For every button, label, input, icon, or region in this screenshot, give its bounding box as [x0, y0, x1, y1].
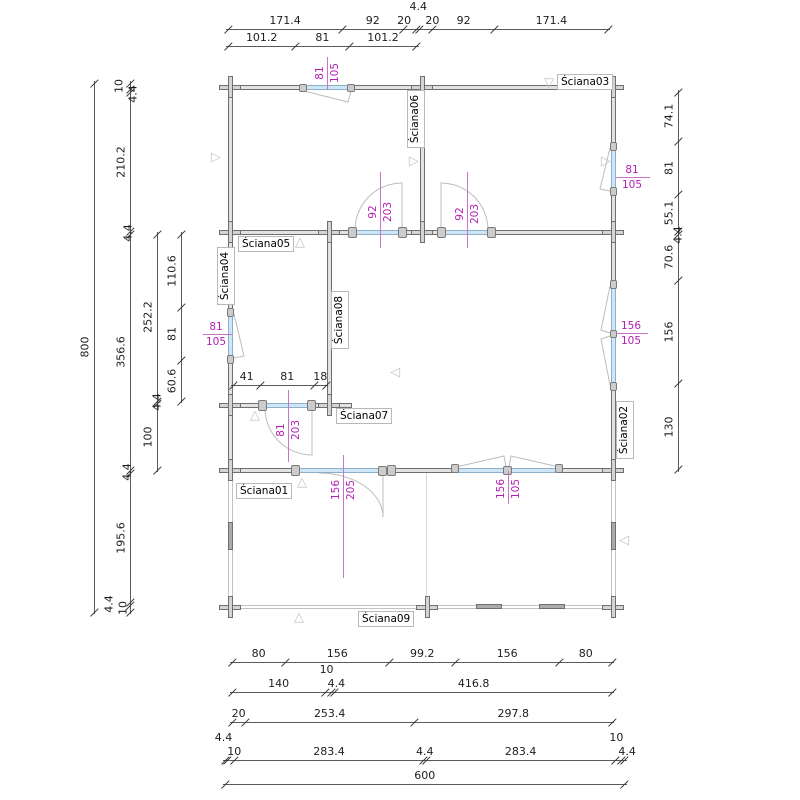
dimension-value: 283.4 — [313, 745, 345, 758]
junction-cross-bar — [611, 459, 616, 481]
dimension-line — [157, 232, 158, 472]
dimension-value: 4.4 — [618, 745, 636, 758]
jamb-block — [610, 280, 617, 289]
wall-label-sciana07: Ściana07 — [336, 408, 392, 424]
jamb-block — [451, 464, 459, 473]
dimension-value: 80 — [252, 647, 266, 660]
dimension-value: 130 — [663, 416, 676, 437]
dimension-value: 74.1 — [663, 104, 676, 129]
wall-label-sciana03: Ściana03 — [557, 74, 613, 90]
porch-wall-dash — [476, 604, 502, 609]
junction-cross-bar — [611, 221, 616, 243]
jamb-block — [610, 382, 617, 391]
porch-post-left — [228, 522, 233, 550]
dimension-value: 283.4 — [505, 745, 537, 758]
dimension-value: 195.6 — [115, 522, 128, 554]
casement-window-top — [304, 91, 351, 102]
dimension-value: 210.2 — [115, 146, 128, 178]
dimension-value: 252.2 — [142, 302, 155, 334]
dimension-value: 100 — [142, 426, 155, 447]
dimension-value: 80 — [579, 647, 593, 660]
dimension-value: 101.2 — [367, 31, 399, 44]
dimension-line — [130, 81, 131, 614]
triangle-marker: △ — [250, 409, 260, 422]
wall-mid-segment — [492, 230, 616, 235]
opening-centerline — [380, 172, 381, 248]
dimension-value: 4.4 — [409, 0, 427, 13]
dimension-value: 20 — [425, 14, 439, 27]
opening-height-value: 203 — [382, 202, 394, 222]
window-right-81-glass — [611, 146, 616, 192]
dimension-value: 20 — [397, 14, 411, 27]
dimension-value: 140 — [268, 677, 289, 690]
triangle-marker: △ — [297, 476, 307, 489]
triangle-marker: △ — [544, 77, 554, 90]
dimension-value: 55.1 — [663, 200, 676, 225]
dimension-value: 18 — [313, 370, 327, 383]
opening-centerline — [508, 471, 509, 504]
wall-label-sciana04: Ściana04 — [217, 247, 235, 305]
dimension-value: 800 — [79, 337, 92, 358]
dimension-value: 171.4 — [269, 14, 301, 27]
opening-width-value: 81 — [625, 164, 638, 176]
junction-cross-bar — [611, 596, 616, 618]
casement-window-s01-a — [456, 456, 506, 467]
casement-window-right-156-a — [601, 286, 610, 333]
jamb-block — [378, 466, 387, 476]
dimension-value: 10 — [320, 663, 334, 676]
junction-cross-bar — [228, 221, 233, 243]
junction-cross-bar — [425, 596, 430, 618]
junction-cross-bar — [420, 221, 425, 243]
dimension-value: 110.6 — [166, 255, 179, 287]
dimension-value: 81 — [280, 370, 294, 383]
opening-height-value: 105 — [510, 479, 522, 499]
dimension-line — [94, 81, 95, 614]
dimension-value: 70.6 — [663, 245, 676, 270]
opening-centerline — [343, 455, 344, 578]
jamb-block — [398, 227, 407, 238]
dimension-value: 4.4 — [215, 731, 233, 744]
door-81-sill — [262, 403, 312, 408]
jamb-block — [347, 84, 355, 92]
dimension-value: 101.2 — [246, 31, 278, 44]
casement-window-s01-b — [509, 456, 559, 467]
wall-left-segment — [228, 360, 233, 473]
triangle-marker: △ — [389, 368, 402, 378]
opening-height-value: 105 — [622, 179, 642, 191]
opening-width-value: 156 — [330, 480, 342, 500]
dimension-value: 10 — [227, 745, 241, 758]
jamb-block — [437, 227, 446, 238]
dimension-value: 356.6 — [115, 336, 128, 368]
dimension-value: 81 — [663, 161, 676, 175]
dimension-value: 60.6 — [166, 368, 179, 393]
dimension-value: 4.4 — [103, 595, 116, 613]
window-left-glass — [228, 312, 233, 358]
triangle-marker: △ — [210, 153, 223, 163]
dimension-value: 92 — [457, 14, 471, 27]
opening-width-value: 92 — [367, 205, 379, 218]
wall-label-sciana01: Ściana01 — [236, 483, 292, 499]
floor-plan-canvas: 171.492204.42092171.4101.281101.24181188… — [0, 0, 800, 800]
opening-width-value: 156 — [621, 320, 641, 332]
dimension-value: 156 — [663, 322, 676, 343]
wall-label-sciana02: Ściana02 — [616, 401, 634, 459]
jamb-block — [227, 355, 234, 364]
dimension-value: 99.2 — [410, 647, 435, 660]
wall-label-sciana08: Ściana08 — [331, 291, 349, 349]
triangle-marker: △ — [295, 236, 305, 249]
jamb-block — [307, 400, 316, 411]
opening-centerline — [616, 333, 648, 334]
wall-label-sciana05: Ściana05 — [238, 236, 294, 252]
junction-cross-bar — [228, 394, 233, 416]
casement-window-left — [234, 314, 244, 358]
door-swing-and-casement-layer — [0, 0, 800, 800]
dimension-value: 92 — [366, 14, 380, 27]
dimension-line — [226, 46, 419, 47]
dimension-value: 10 — [609, 731, 623, 744]
jamb-block — [387, 465, 396, 476]
opening-height-value: 205 — [345, 480, 357, 500]
opening-height-value: 203 — [290, 420, 302, 440]
jamb-block — [348, 227, 357, 238]
jamb-block — [610, 142, 617, 151]
casement-window-right-156-b — [601, 336, 610, 385]
dimension-value: 10 — [113, 79, 126, 93]
wall-label-sciana06: Ściana06 — [407, 90, 425, 148]
opening-height-value: 203 — [469, 204, 481, 224]
junction-cross-bar — [228, 76, 233, 98]
triangle-marker: △ — [618, 536, 631, 546]
dimension-line — [230, 692, 614, 693]
jamb-block — [487, 227, 496, 238]
dimension-value: 81 — [166, 327, 179, 341]
triangle-marker: △ — [600, 157, 613, 167]
dimension-value: 4.4 — [416, 745, 434, 758]
jamb-block — [610, 330, 617, 338]
dimension-value: 81 — [315, 31, 329, 44]
dimension-line — [230, 722, 614, 723]
junction-cross-bar — [327, 394, 332, 416]
jamb-block — [555, 464, 563, 473]
porch-post-right — [611, 522, 616, 550]
opening-centerline — [203, 334, 233, 335]
dimension-value: 41 — [240, 370, 254, 383]
dimension-value: 416.8 — [458, 677, 490, 690]
triangle-marker: △ — [294, 611, 304, 624]
opening-height-value: 105 — [329, 63, 341, 83]
junction-cross-bar — [228, 596, 233, 618]
floor-plan-page: { "drawing": { "type": "floor-plan", "un… — [0, 0, 800, 800]
porch-wall-dash — [539, 604, 565, 609]
triangle-marker: △ — [408, 157, 421, 167]
opening-centerline — [288, 390, 289, 462]
dimension-value: 156 — [497, 647, 518, 660]
dimension-value: 253.4 — [314, 707, 346, 720]
wall-label-sciana09: Ściana09 — [358, 611, 414, 627]
opening-width-value: 92 — [454, 207, 466, 220]
jamb-block — [299, 84, 307, 92]
jamb-block — [227, 308, 234, 317]
wall-sciana01-segment — [392, 468, 455, 473]
opening-width-value: 81 — [275, 423, 287, 436]
opening-width-value: 81 — [209, 321, 222, 333]
opening-centerline — [327, 57, 328, 90]
dimension-value: 156 — [327, 647, 348, 660]
dimension-value: 4.4 — [672, 227, 685, 245]
junction-cross-bar — [228, 459, 233, 481]
porch-middle-line — [426, 473, 427, 606]
opening-width-value: 81 — [314, 66, 326, 79]
dimension-value: 4.4 — [151, 393, 164, 411]
opening-height-value: 105 — [206, 336, 226, 348]
dimension-value: 4.4 — [328, 677, 346, 690]
dimension-value: 4.4 — [127, 85, 140, 103]
opening-centerline — [467, 172, 468, 248]
opening-centerline — [616, 177, 650, 178]
dimension-value: 4.4 — [122, 224, 135, 242]
dimension-line — [181, 232, 182, 403]
jamb-block — [610, 187, 617, 196]
dimension-value: 171.4 — [536, 14, 568, 27]
opening-width-value: 156 — [495, 479, 507, 499]
junction-cross-bar — [327, 221, 332, 243]
dimension-line — [223, 784, 627, 785]
casement-window-right-81 — [600, 148, 610, 191]
door-left-92-sill — [352, 230, 403, 235]
dimension-value: 20 — [232, 707, 246, 720]
dimension-value: 600 — [414, 769, 435, 782]
dimension-value: 4.4 — [121, 463, 134, 481]
dimension-value: 297.8 — [498, 707, 530, 720]
opening-height-value: 105 — [621, 335, 641, 347]
dimension-value: 10 — [117, 601, 130, 615]
